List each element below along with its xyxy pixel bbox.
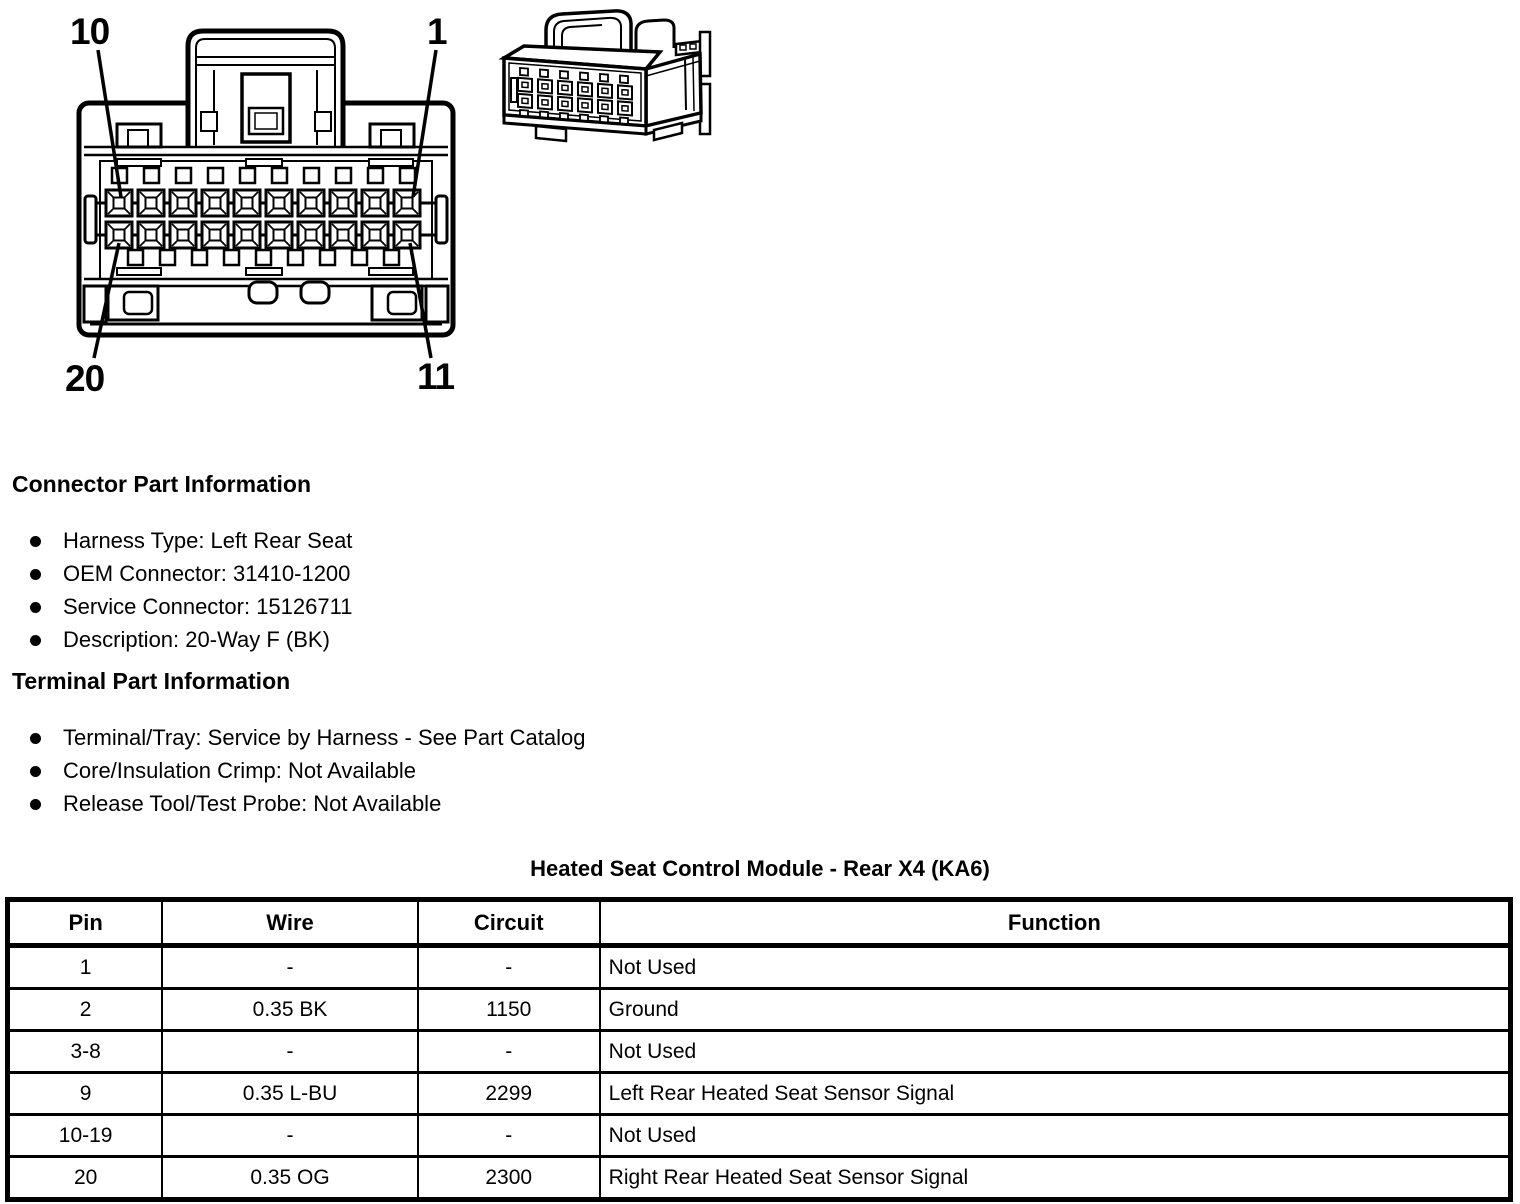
- connector-perspective-view-drawing: [488, 2, 714, 150]
- wire-cell: 0.35 BK: [162, 989, 418, 1031]
- wire-cell: -: [162, 1115, 418, 1157]
- list-item: Release Tool/Test Probe: Not Available: [30, 791, 586, 817]
- connector-part-information-list: Harness Type: Left Rear Seat OEM Connect…: [30, 528, 352, 660]
- circuit-cell: 2299: [418, 1073, 600, 1115]
- pin-cell: 10-19: [8, 1115, 163, 1157]
- circuit-cell: 1150: [418, 989, 600, 1031]
- pinout-table-title: Heated Seat Control Module - Rear X4 (KA…: [0, 856, 1520, 882]
- wire-cell: -: [162, 946, 418, 989]
- pin-cell: 2: [8, 989, 163, 1031]
- pin-label-20: 20: [65, 360, 104, 397]
- terminal-part-information-list: Terminal/Tray: Service by Harness - See …: [30, 725, 586, 824]
- table-row: 9 0.35 L-BU 2299 Left Rear Heated Seat S…: [8, 1073, 1511, 1115]
- pin-cell: 1: [8, 946, 163, 989]
- circuit-cell: -: [418, 1031, 600, 1073]
- wire-cell: 0.35 OG: [162, 1157, 418, 1200]
- list-item: Description: 20-Way F (BK): [30, 627, 352, 653]
- circuit-cell: 2300: [418, 1157, 600, 1200]
- function-cell: Not Used: [600, 946, 1511, 989]
- table-row: 20 0.35 OG 2300 Right Rear Heated Seat S…: [8, 1157, 1511, 1200]
- function-cell: Not Used: [600, 1115, 1511, 1157]
- pin-cell: 3-8: [8, 1031, 163, 1073]
- terminal-part-information-heading: Terminal Part Information: [12, 668, 290, 695]
- table-row: 1 - - Not Used: [8, 946, 1511, 989]
- wire-cell: -: [162, 1031, 418, 1073]
- function-cell: Left Rear Heated Seat Sensor Signal: [600, 1073, 1511, 1115]
- pinout-table: Pin Wire Circuit Function 1 - - Not Used…: [5, 897, 1513, 1202]
- connector-document-page: 10 1 20 11: [0, 0, 1520, 1204]
- column-header-wire: Wire: [162, 900, 418, 946]
- pin-label-11: 11: [417, 358, 454, 395]
- circuit-cell: -: [418, 946, 600, 989]
- pin-cell: 20: [8, 1157, 163, 1200]
- column-header-function: Function: [600, 900, 1511, 946]
- list-item: Terminal/Tray: Service by Harness - See …: [30, 725, 586, 751]
- pin-label-10: 10: [70, 13, 109, 50]
- pin-label-1: 1: [427, 13, 447, 50]
- connector-front-view-drawing: [0, 0, 470, 412]
- circuit-cell: -: [418, 1115, 600, 1157]
- table-row: 2 0.35 BK 1150 Ground: [8, 989, 1511, 1031]
- list-item: Service Connector: 15126711: [30, 594, 352, 620]
- function-cell: Not Used: [600, 1031, 1511, 1073]
- column-header-circuit: Circuit: [418, 900, 600, 946]
- wire-cell: 0.35 L-BU: [162, 1073, 418, 1115]
- table-row: 3-8 - - Not Used: [8, 1031, 1511, 1073]
- connector-part-information-heading: Connector Part Information: [12, 471, 311, 498]
- function-cell: Right Rear Heated Seat Sensor Signal: [600, 1157, 1511, 1200]
- table-row: 10-19 - - Not Used: [8, 1115, 1511, 1157]
- list-item: Harness Type: Left Rear Seat: [30, 528, 352, 554]
- column-header-pin: Pin: [8, 900, 163, 946]
- list-item: Core/Insulation Crimp: Not Available: [30, 758, 586, 784]
- table-header-row: Pin Wire Circuit Function: [8, 900, 1511, 946]
- pin-cell: 9: [8, 1073, 163, 1115]
- function-cell: Ground: [600, 989, 1511, 1031]
- list-item: OEM Connector: 31410-1200: [30, 561, 352, 587]
